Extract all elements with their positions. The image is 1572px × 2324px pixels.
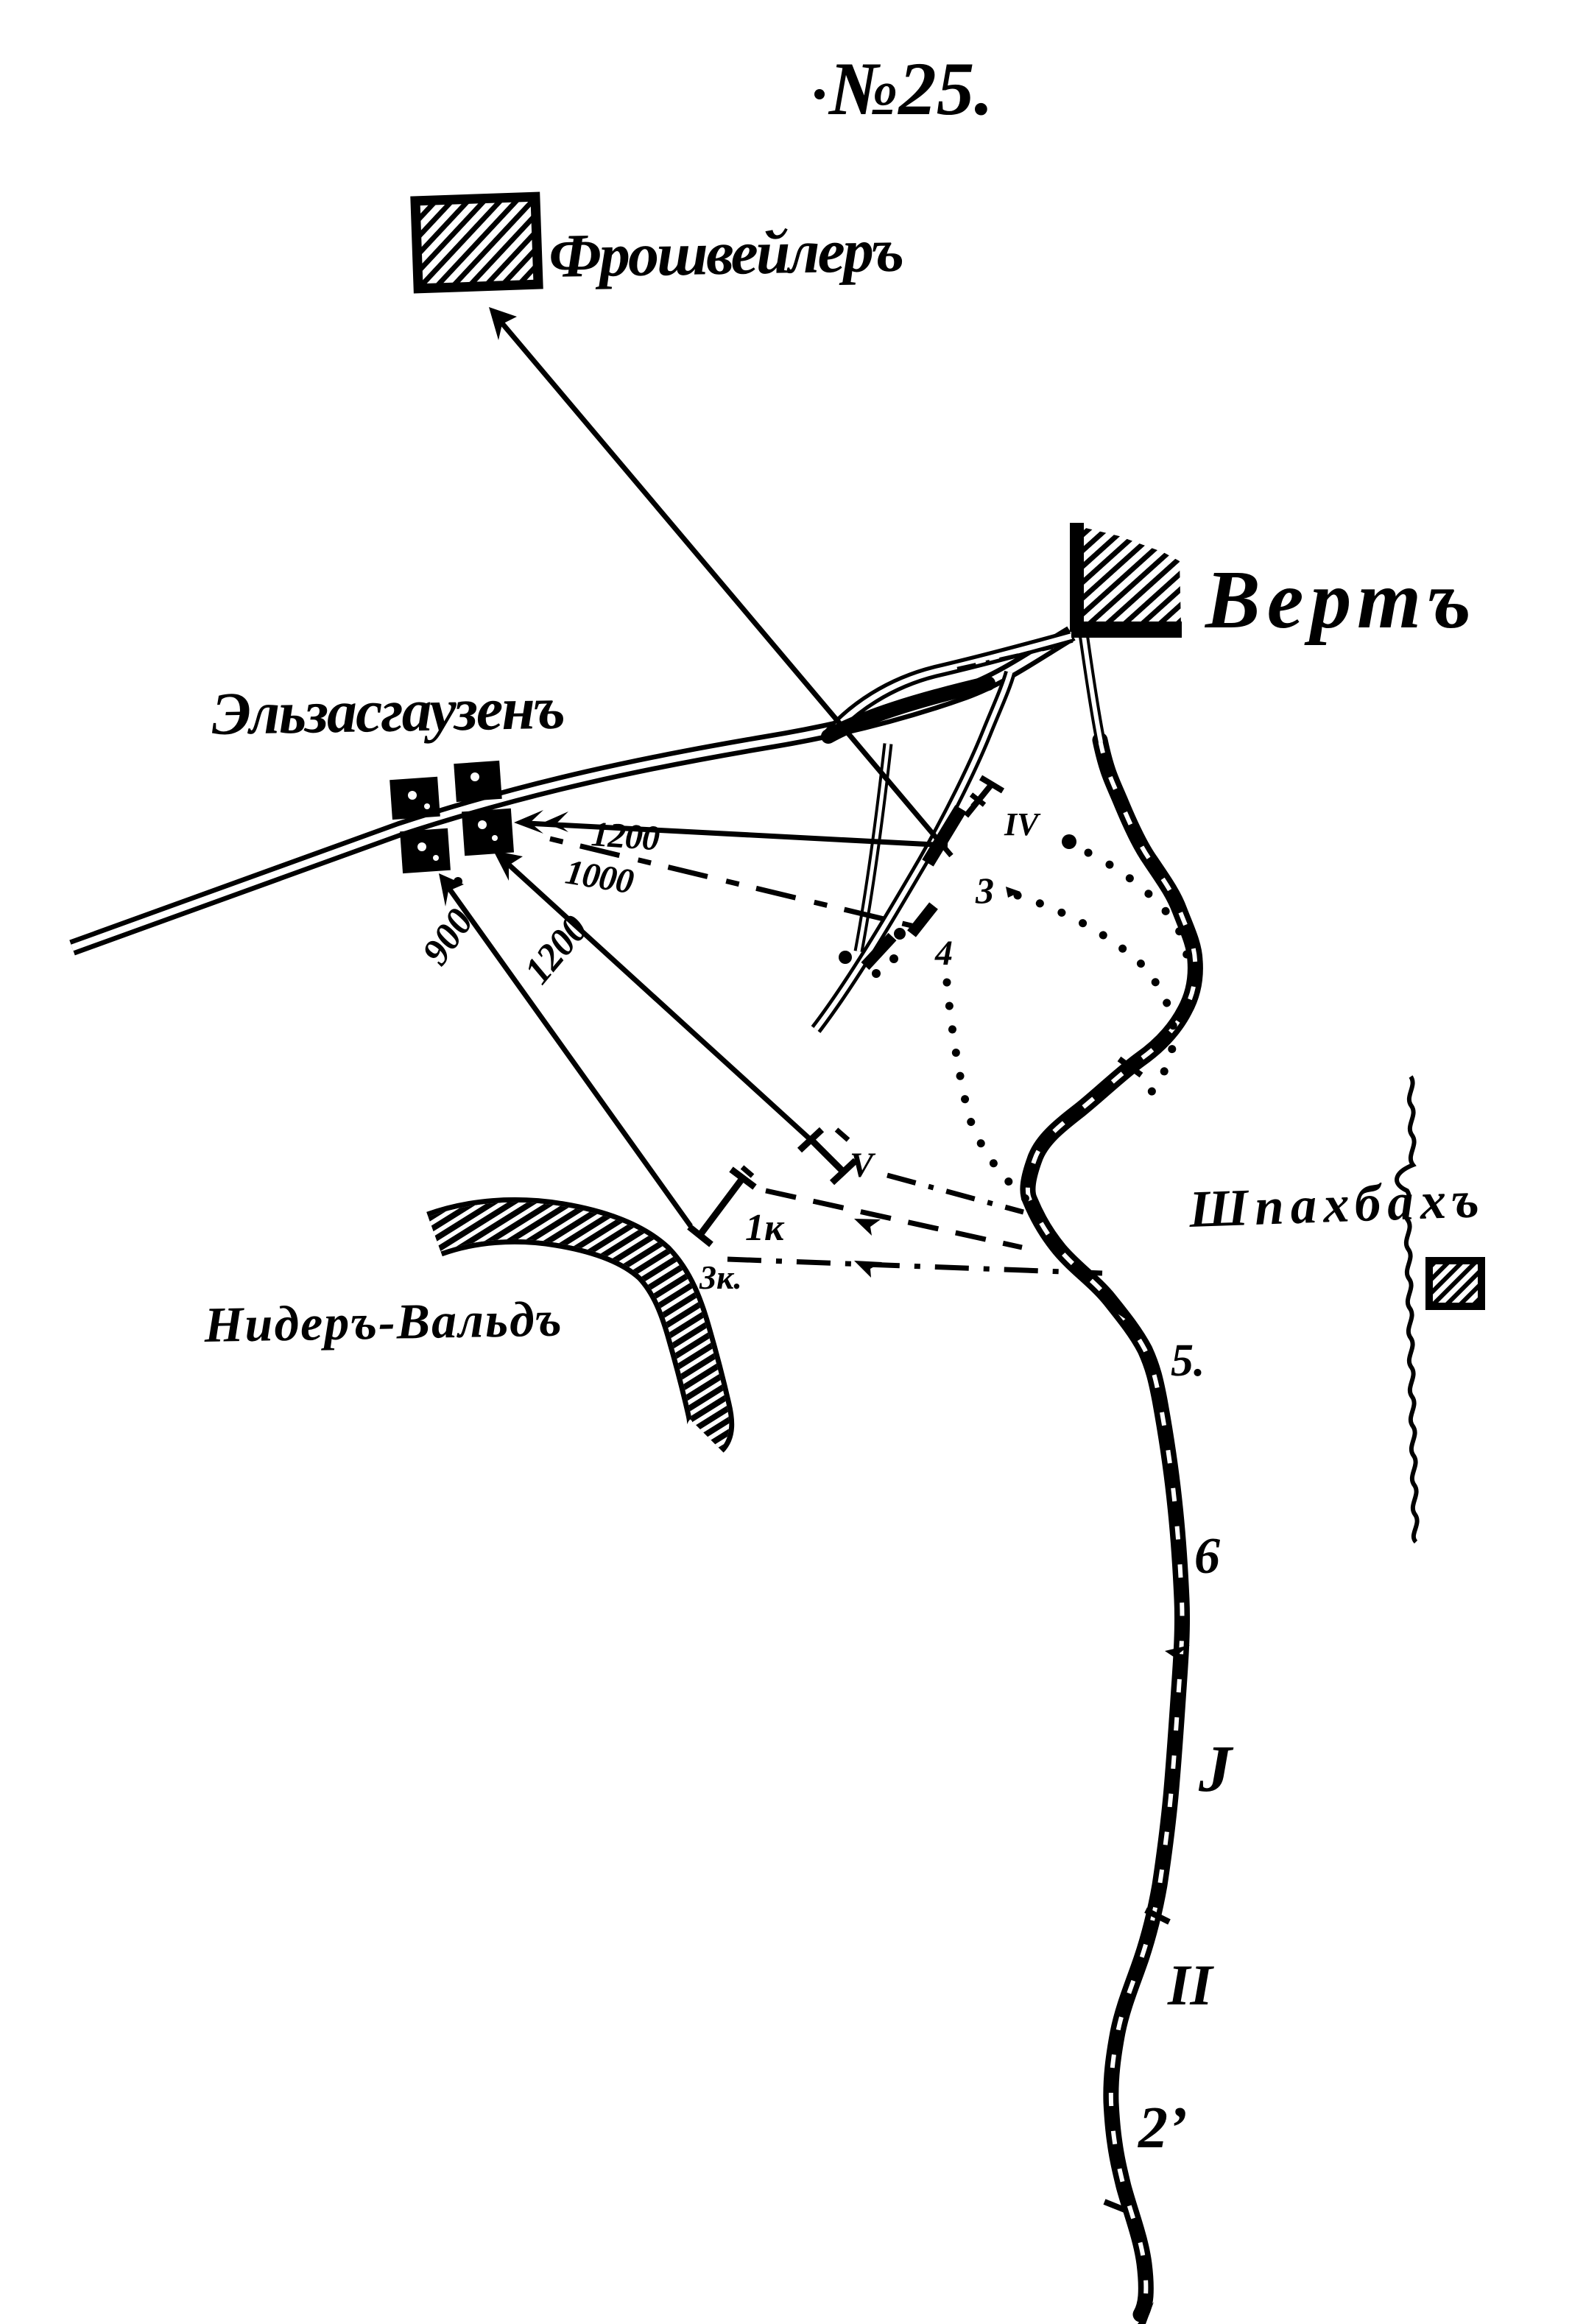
svg-text:Эльзасгаузенъ: Эльзасгаузенъ [211,675,565,747]
svg-text:3: 3 [975,870,994,911]
svg-text:3к.: 3к. [699,1258,742,1296]
svg-text:Шпахбахъ: Шпахбахъ [1188,1171,1487,1239]
svg-text:IV: IV [1004,806,1041,842]
svg-text:Вертъ: Вертъ [1204,554,1478,646]
svg-text:1к: 1к [745,1207,785,1249]
svg-text:II: II [1167,1953,1214,2017]
svg-text:Нидеръ-Вальдъ: Нидеръ-Вальдъ [203,1291,563,1353]
svg-text:J: J [1198,1733,1234,1806]
svg-text:Фрошвейлеръ: Фрошвейлеръ [549,216,903,291]
svg-text:2’: 2’ [1138,2096,1188,2161]
svg-text:5.: 5. [1171,1336,1205,1386]
svg-text:№25.: №25. [828,47,993,131]
svg-text:V: V [850,1146,876,1185]
svg-text:4: 4 [934,934,953,973]
svg-text:6: 6 [1194,1528,1220,1585]
